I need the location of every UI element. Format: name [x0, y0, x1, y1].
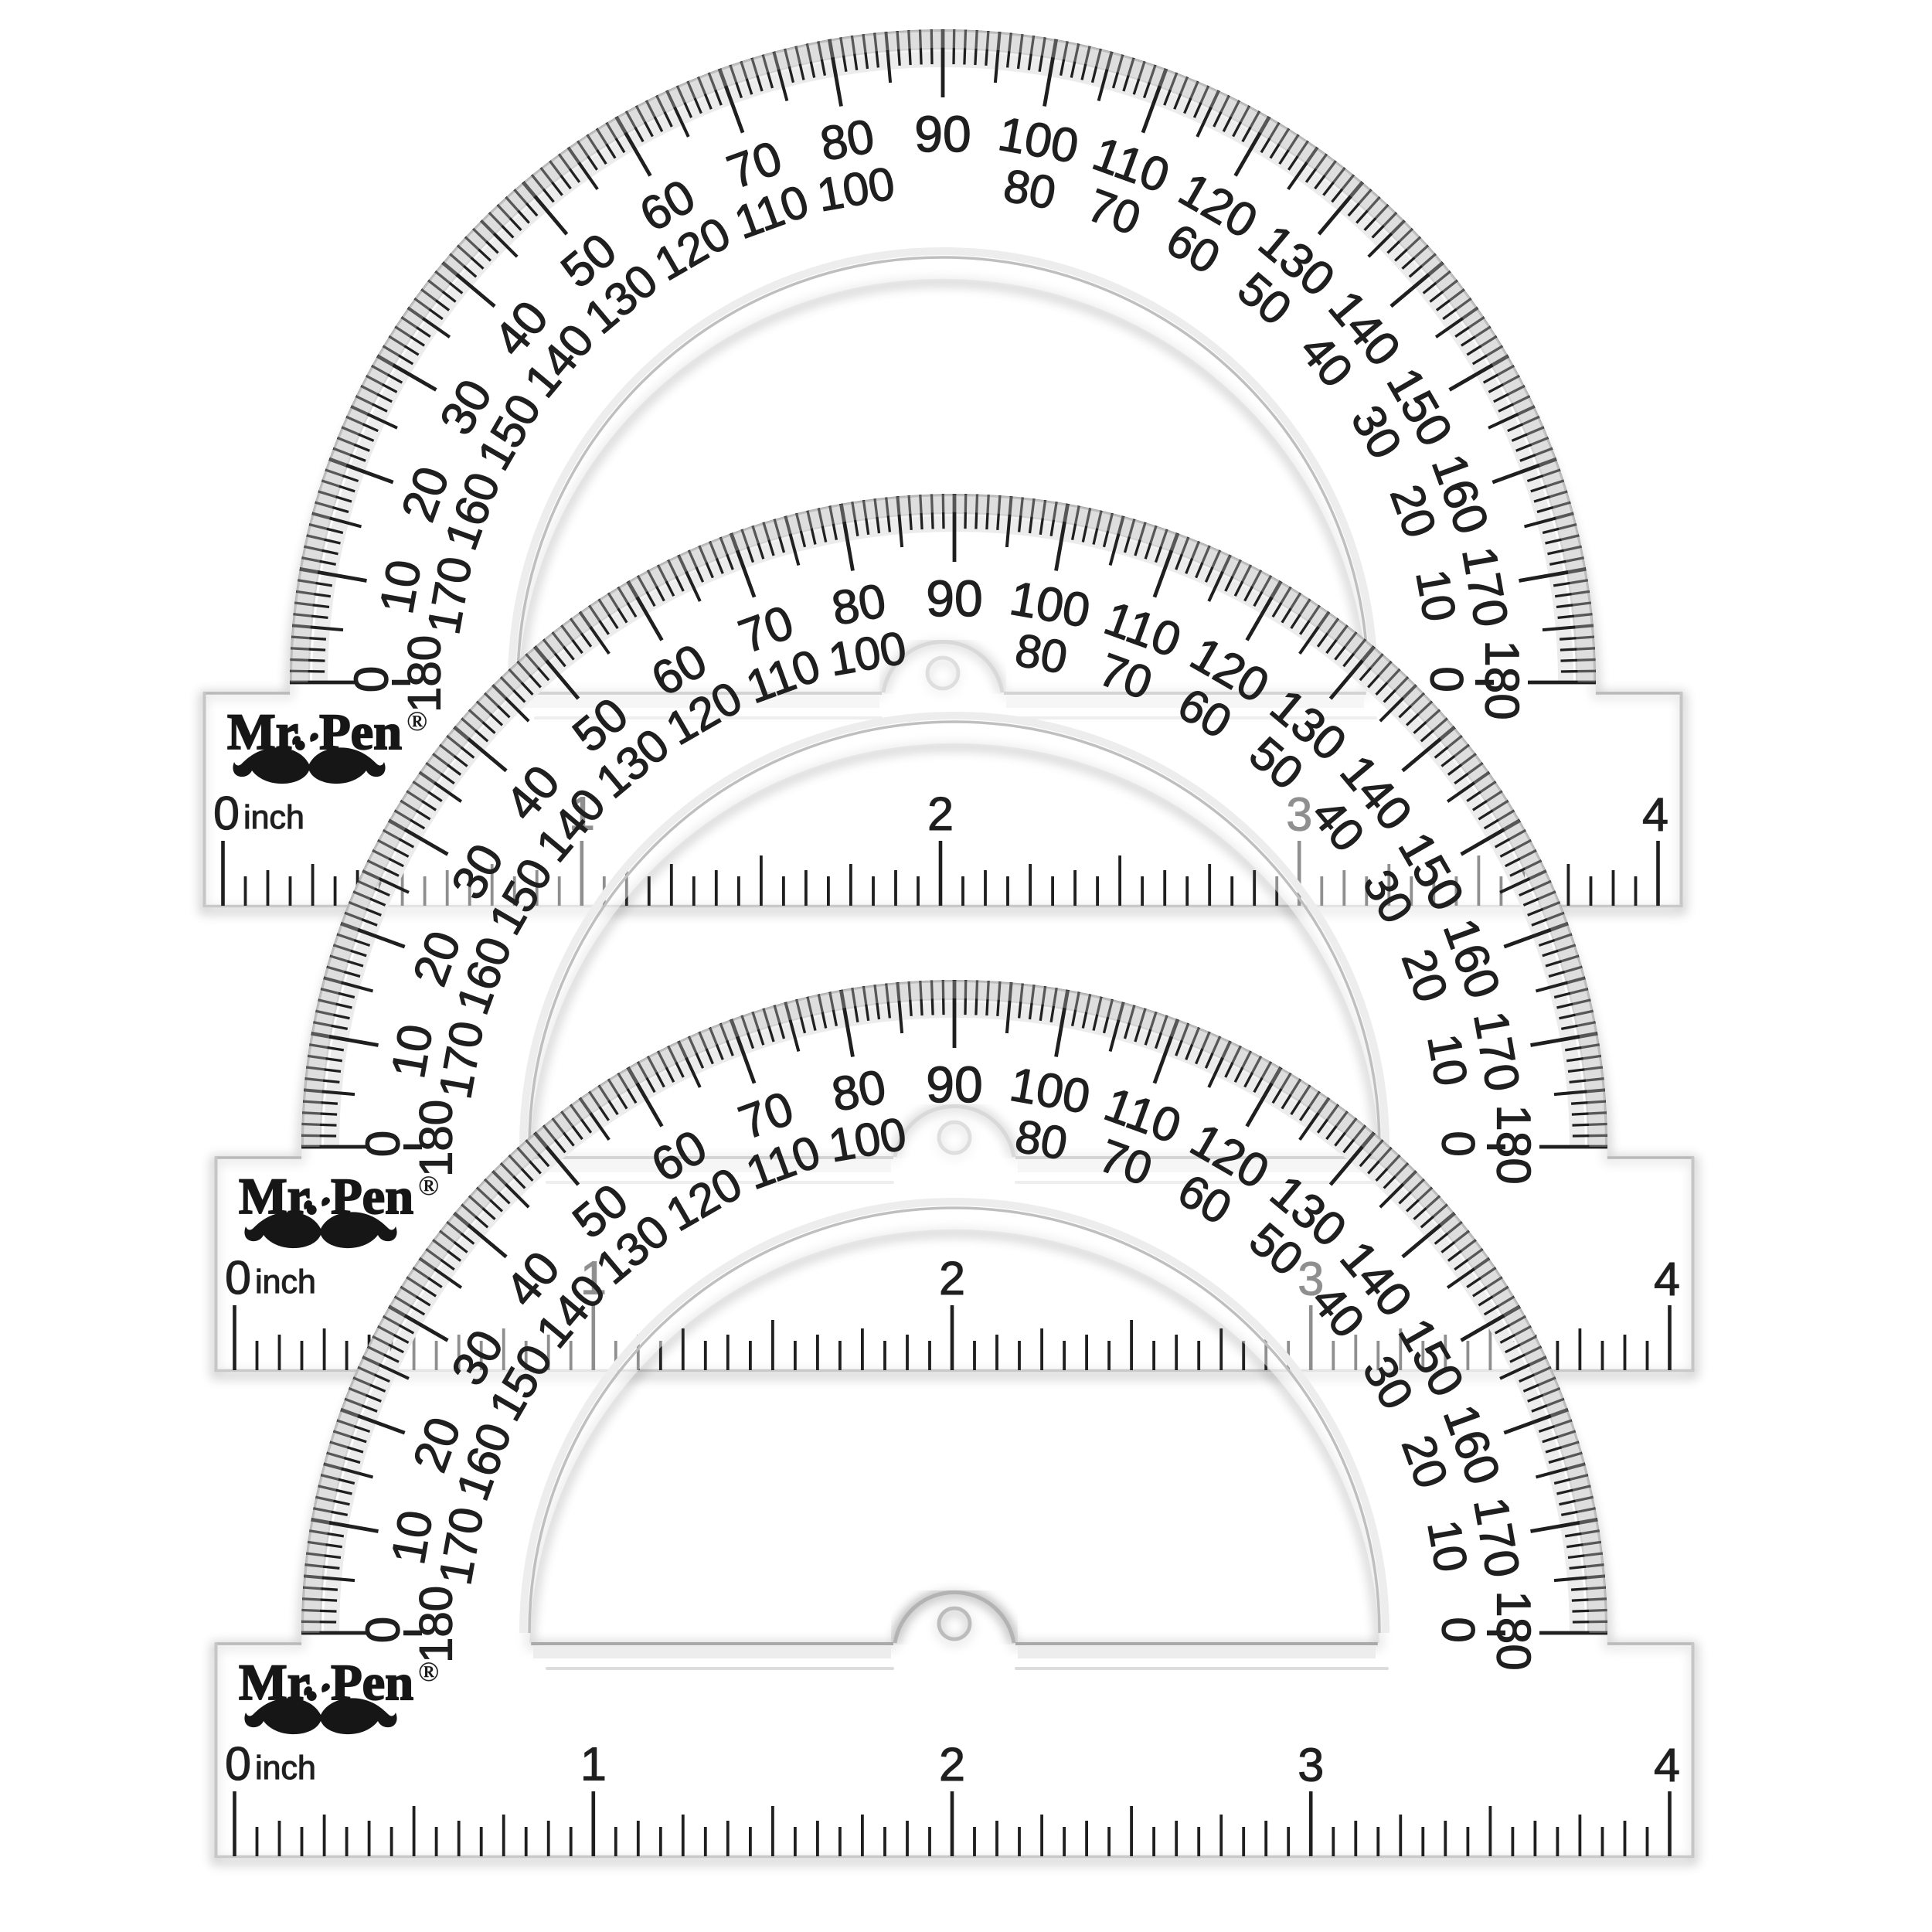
svg-text:90: 90	[914, 105, 971, 162]
svg-text:80: 80	[1000, 159, 1060, 219]
svg-text:2: 2	[927, 787, 954, 840]
svg-text:80: 80	[1012, 1110, 1071, 1170]
svg-text:10: 10	[1406, 566, 1466, 625]
svg-text:0: 0	[1433, 1131, 1485, 1156]
svg-text:0: 0	[357, 1131, 410, 1157]
svg-text:4: 4	[1642, 788, 1668, 841]
svg-text:10: 10	[1417, 1030, 1478, 1090]
svg-text:Mr. Pen: Mr. Pen	[227, 704, 402, 760]
svg-text:0: 0	[345, 666, 399, 692]
svg-text:0: 0	[1421, 666, 1473, 692]
svg-text:1: 1	[580, 1737, 607, 1790]
svg-text:80: 80	[1012, 624, 1071, 684]
svg-text:®: ®	[418, 1656, 439, 1687]
svg-text:90: 90	[926, 1056, 982, 1113]
svg-text:0: 0	[357, 1617, 410, 1643]
svg-text:®: ®	[406, 706, 427, 736]
svg-text:2: 2	[939, 1252, 965, 1304]
svg-text:10: 10	[1417, 1516, 1478, 1576]
svg-text:4: 4	[1654, 1739, 1680, 1791]
svg-text:0: 0	[1433, 1617, 1485, 1642]
svg-text:2: 2	[939, 1738, 965, 1791]
svg-text:180: 180	[399, 635, 451, 713]
svg-text:180: 180	[410, 1100, 462, 1177]
svg-text:3: 3	[1298, 1738, 1324, 1791]
svg-text:Mr. Pen: Mr. Pen	[239, 1168, 413, 1225]
svg-text:®: ®	[418, 1170, 439, 1201]
svg-text:180: 180	[410, 1586, 462, 1663]
svg-text:90: 90	[926, 570, 982, 627]
svg-text:Mr. Pen: Mr. Pen	[239, 1655, 413, 1711]
svg-text:4: 4	[1654, 1253, 1680, 1305]
